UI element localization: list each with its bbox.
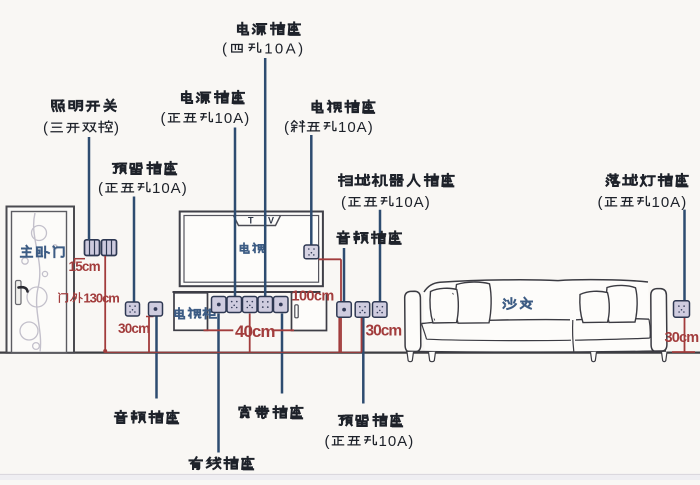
svg-text:10A): 10A) bbox=[379, 433, 415, 450]
svg-text:(: ( bbox=[598, 194, 604, 211]
svg-text:30cm: 30cm bbox=[118, 321, 150, 336]
svg-text:(: ( bbox=[284, 119, 290, 136]
svg-text:10A): 10A) bbox=[215, 110, 251, 127]
svg-text:): ) bbox=[114, 119, 120, 136]
svg-text:40cm: 40cm bbox=[235, 322, 275, 341]
svg-text:10A): 10A) bbox=[652, 194, 688, 211]
svg-text:10A): 10A) bbox=[395, 194, 431, 211]
svg-text:30cm: 30cm bbox=[366, 322, 402, 339]
svg-text:(: ( bbox=[341, 194, 347, 211]
svg-text:(: ( bbox=[43, 119, 49, 136]
svg-text:(: ( bbox=[98, 180, 104, 197]
svg-text:10A): 10A) bbox=[338, 119, 374, 136]
svg-text:30cm: 30cm bbox=[665, 330, 699, 346]
svg-text:(: ( bbox=[325, 433, 331, 450]
svg-text:10A): 10A) bbox=[264, 40, 305, 57]
svg-text:(: ( bbox=[222, 40, 229, 57]
svg-text:100cm: 100cm bbox=[292, 288, 334, 304]
svg-text:10A): 10A) bbox=[152, 180, 188, 197]
svg-text:15cm: 15cm bbox=[69, 259, 101, 274]
svg-text:(: ( bbox=[161, 110, 167, 127]
svg-text:130cm: 130cm bbox=[83, 290, 119, 305]
